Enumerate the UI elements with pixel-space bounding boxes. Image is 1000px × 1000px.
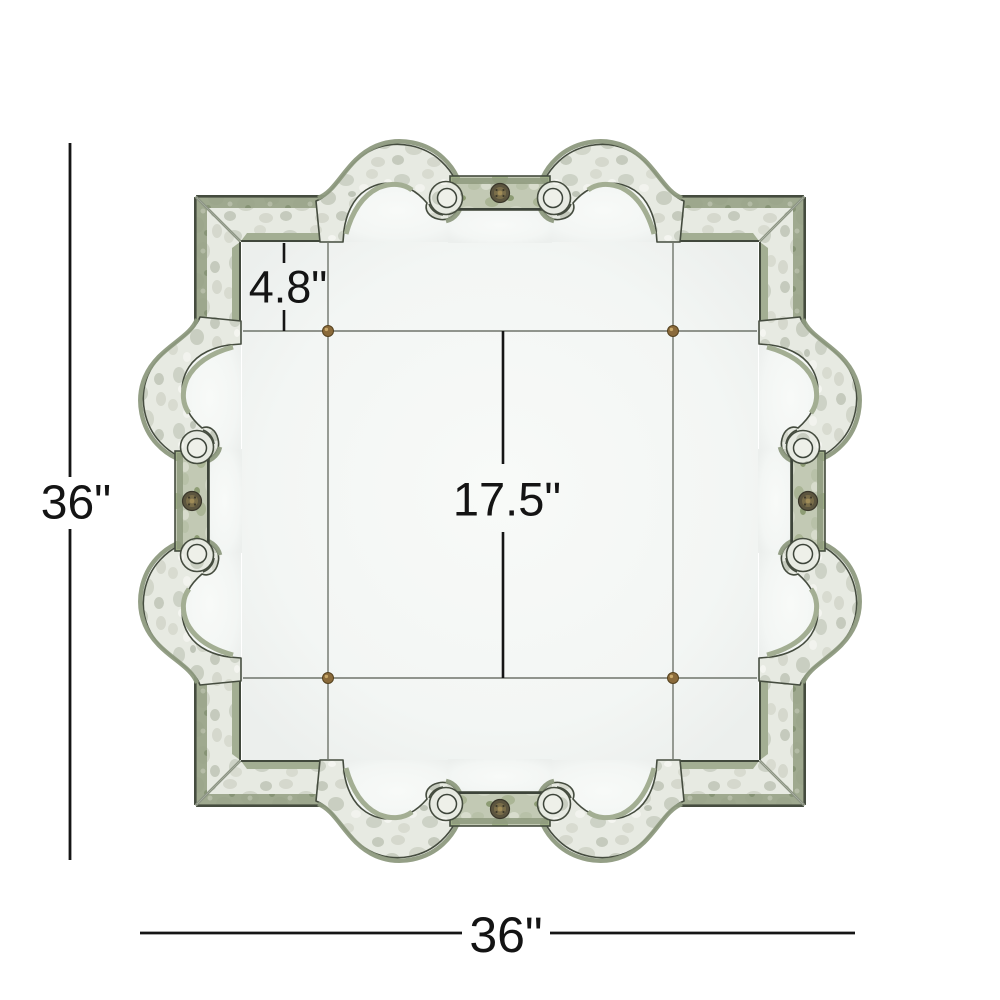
product-dimension-diagram: 36" 36" 4.8" 17.5" — [0, 0, 1000, 1000]
width-dimension-label: 36" — [469, 907, 542, 963]
border-dimension-label: 4.8" — [249, 262, 328, 313]
mirror-dimension-figure: 36" 36" 4.8" 17.5" — [0, 0, 1000, 1000]
height-dimension-label: 36" — [41, 477, 111, 530]
center-panel-dimension-label: 17.5" — [453, 473, 561, 526]
